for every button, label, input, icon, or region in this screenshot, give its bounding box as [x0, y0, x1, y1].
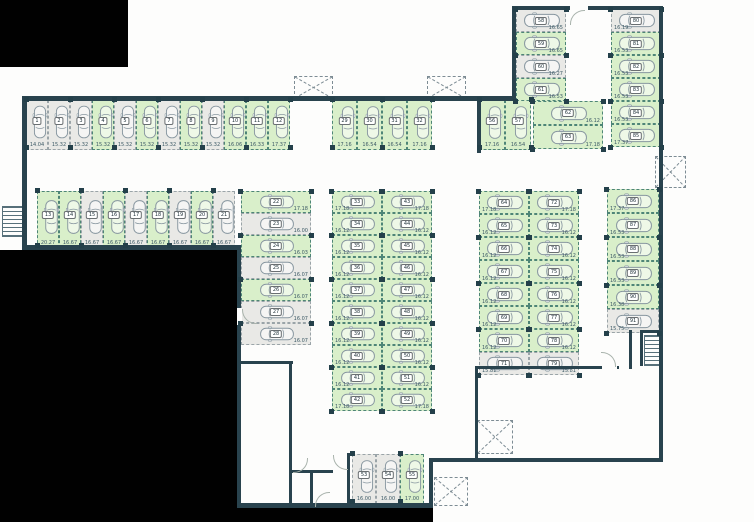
stall-number: 7: [164, 117, 173, 125]
structural-pillar: [244, 145, 249, 150]
structural-pillar: [564, 53, 569, 58]
wall: [22, 96, 516, 101]
stall-dimension: 17.37: [269, 143, 289, 148]
parking-stall-60[interactable]: 6016.27: [516, 55, 566, 78]
stall-dimension: 16.12: [335, 361, 349, 366]
structural-pillar: [526, 327, 531, 332]
structural-pillar: [329, 365, 334, 370]
door-arc: [333, 455, 348, 470]
parking-stall-78[interactable]: 7816.12: [529, 329, 579, 352]
structural-pillar: [601, 147, 606, 152]
parking-stall-89[interactable]: 8916.53: [607, 261, 659, 285]
structural-pillar: [476, 327, 481, 332]
stall-dimension: 16.27: [549, 72, 563, 77]
parking-stall-30[interactable]: 3016.54: [357, 100, 382, 150]
parking-stall-55[interactable]: 5517.00: [400, 454, 424, 504]
door-arc: [315, 492, 330, 507]
stall-number: 21: [218, 211, 230, 219]
stall-number: 52: [401, 396, 413, 404]
stall-number: 38: [351, 308, 363, 316]
parking-stall-61[interactable]: 6116.53: [516, 78, 566, 101]
stall-dimension: 16.12: [335, 251, 349, 256]
structural-pillar: [309, 277, 314, 282]
parking-stall-57[interactable]: 5716.54: [505, 100, 531, 150]
stall-dimension: 16.12: [335, 229, 349, 234]
stall-number: 78: [548, 337, 560, 345]
parking-stall-59[interactable]: 5916.65: [516, 32, 566, 55]
stall-number: 48: [401, 308, 413, 316]
parking-stall-20[interactable]: 2016.67: [191, 191, 213, 248]
parking-stall-62[interactable]: 6216.12: [533, 101, 603, 125]
stall-group-upper-col-left: 5816.65 5916.65 6016.27 6116.53: [516, 9, 566, 101]
stall-group-bottom-row: 5316.00 5416.00 5517.00: [352, 454, 424, 504]
stall-number: 91: [627, 317, 639, 325]
parking-stall-41[interactable]: 4116.12: [332, 367, 382, 389]
parking-stall-14[interactable]: 1416.67: [59, 191, 81, 248]
structural-pillar: [238, 277, 243, 282]
parking-stall-54[interactable]: 5416.00: [376, 454, 400, 504]
parking-stall-47[interactable]: 4716.12: [382, 279, 432, 301]
stall-dimension: 16.12: [335, 339, 349, 344]
structural-pillar: [430, 233, 435, 238]
stall-dimension: 16.53: [610, 279, 624, 284]
structural-pillar: [430, 189, 435, 194]
stall-dimension: 16.12: [482, 300, 496, 305]
stall-dimension: 16.12: [562, 231, 576, 236]
stall-dimension: 15.81: [482, 369, 496, 374]
stall-number: 13: [42, 211, 54, 219]
stall-dimension: 16.12: [335, 295, 349, 300]
stall-number: 42: [351, 396, 363, 404]
stall-number: 89: [627, 269, 639, 277]
structural-pillar: [68, 97, 73, 102]
stall-number: 83: [630, 86, 642, 94]
stall-dimension: 17.37: [614, 141, 628, 146]
parking-stall-49[interactable]: 4916.12: [382, 323, 432, 345]
structural-pillar: [577, 189, 582, 194]
parking-stall-22[interactable]: 2217.18: [241, 191, 311, 213]
parking-stall-58[interactable]: 5816.65: [516, 9, 566, 32]
stall-number: 5: [120, 117, 129, 125]
structural-pillar: [657, 187, 662, 192]
stall-dimension: 16.53: [610, 231, 624, 236]
parking-stall-39[interactable]: 3916.12: [332, 323, 382, 345]
parking-stall-17[interactable]: 1716.67: [125, 191, 147, 248]
parking-stall-13[interactable]: 1320.27: [37, 191, 59, 248]
stall-dimension: 17.18: [415, 405, 429, 410]
structural-pillar: [35, 243, 40, 248]
stall-number: 80: [630, 17, 642, 25]
structural-pillar: [288, 97, 293, 102]
stall-number: 47: [401, 286, 413, 294]
stall-dimension: 16.12: [415, 383, 429, 388]
stall-dimension: 15.81: [562, 369, 576, 374]
parking-stall-29[interactable]: 2917.16: [332, 100, 357, 150]
stall-dimension: 16.12: [415, 317, 429, 322]
stall-number: 9: [208, 117, 217, 125]
stall-number: 19: [174, 211, 186, 219]
parking-stall-31[interactable]: 3116.54: [382, 100, 407, 150]
stall-group-second-row: 1320.27 1416.67 1516.67 1616.67 1716.67 …: [37, 191, 235, 248]
structural-pillar: [659, 53, 664, 58]
structural-pillar: [608, 145, 613, 150]
structural-pillar: [380, 97, 385, 102]
parking-stall-80[interactable]: 8016.19: [611, 9, 661, 32]
stall-dimension: 16.12: [415, 295, 429, 300]
parking-stall-56[interactable]: 5617.16: [479, 100, 505, 150]
stall-number: 81: [630, 40, 642, 48]
structural-pillar: [657, 283, 662, 288]
stall-dimension: 16.12: [482, 231, 496, 236]
stall-number: 3: [76, 117, 85, 125]
structural-pillar: [329, 233, 334, 238]
stall-number: 57: [512, 117, 524, 125]
stall-number: 24: [270, 242, 282, 250]
structural-pillar: [238, 189, 243, 194]
structural-pillar: [329, 321, 334, 326]
stall-dimension: 16.07: [294, 317, 308, 322]
stall-number: 4: [98, 117, 107, 125]
stall-dimension: 16.53: [614, 118, 628, 123]
stall-number: 46: [401, 264, 413, 272]
stall-number: 74: [548, 245, 560, 253]
parking-stall-45[interactable]: 4516.12: [382, 235, 432, 257]
parking-stall-52[interactable]: 5217.18: [382, 389, 432, 411]
structural-pillar: [601, 99, 606, 104]
stall-dimension: 16.12: [415, 251, 429, 256]
parking-stall-90[interactable]: 9016.38: [607, 285, 659, 309]
structural-pillar: [329, 277, 334, 282]
structural-pillar: [608, 99, 613, 104]
parking-stall-3[interactable]: 315.32: [70, 100, 92, 150]
wall: [289, 361, 292, 506]
structural-pillar: [526, 235, 531, 240]
stall-number: 1: [32, 117, 41, 125]
stall-dimension: 16.03: [294, 251, 308, 256]
parking-stall-84[interactable]: 8416.53: [611, 101, 661, 124]
parking-stall-5[interactable]: 515.32: [114, 100, 136, 150]
parking-stall-34[interactable]: 3416.12: [332, 213, 382, 235]
structural-pillar: [526, 189, 531, 194]
parking-stall-16[interactable]: 1616.67: [103, 191, 125, 248]
stall-dimension: 17.37: [610, 207, 624, 212]
wall: [475, 366, 478, 462]
parking-stall-2[interactable]: 215.32: [48, 100, 70, 150]
parking-stall-87[interactable]: 8716.53: [607, 213, 659, 237]
parking-stall-40[interactable]: 4016.12: [332, 345, 382, 367]
parking-stall-38[interactable]: 3816.12: [332, 301, 382, 323]
stall-dimension: 16.12: [562, 254, 576, 259]
stall-dimension: 16.12: [335, 273, 349, 278]
parking-stall-7[interactable]: 715.32: [158, 100, 180, 150]
stall-number: 15: [86, 211, 98, 219]
stall-number: 50: [401, 352, 413, 360]
parking-stall-10[interactable]: 1016.06: [224, 100, 246, 150]
parking-stall-44[interactable]: 4416.12: [382, 213, 432, 235]
stall-number: 65: [498, 222, 510, 230]
structural-pillar: [379, 409, 384, 414]
stall-number: 29: [338, 117, 350, 125]
stall-dimension: 17.18: [294, 207, 308, 212]
structural-pillar: [238, 233, 243, 238]
structural-pillar: [380, 145, 385, 150]
structural-pillar: [200, 145, 205, 150]
structural-pillar: [659, 99, 664, 104]
structural-pillar: [604, 187, 609, 192]
structural-pillar: [244, 97, 249, 102]
stall-dimension: 14.04: [27, 143, 47, 148]
stall-group-mid-col-left: 3317.18 3416.12 3516.12 3616.12 3716.12 …: [332, 191, 382, 411]
parking-stall-53[interactable]: 5316.00: [352, 454, 376, 504]
stall-number: 61: [535, 86, 547, 94]
parking-stall-33[interactable]: 3317.18: [332, 191, 382, 213]
stall-number: 32: [413, 117, 425, 125]
parking-stall-11[interactable]: 1116.33: [246, 100, 268, 150]
wall: [477, 366, 619, 369]
stairs-icon: [2, 206, 24, 237]
structural-pillar: [238, 321, 243, 326]
stall-dimension: 16.12: [562, 277, 576, 282]
structural-pillar: [430, 321, 435, 326]
structural-pillar: [476, 373, 481, 378]
parking-stall-8[interactable]: 815.32: [180, 100, 202, 150]
parking-stall-1[interactable]: 114.04: [26, 100, 48, 150]
stall-dimension: 16.00: [377, 497, 399, 502]
stall-number: 35: [351, 242, 363, 250]
stall-dimension: 16.12: [586, 119, 600, 124]
parking-stall-72[interactable]: 7217.18: [529, 191, 579, 214]
structural-pillar: [35, 188, 40, 193]
stall-dimension: 16.65: [549, 49, 563, 54]
parking-stall-25[interactable]: 2516.07: [241, 257, 311, 279]
stall-number: 34: [351, 220, 363, 228]
stall-number: 30: [363, 117, 375, 125]
stall-dimension: 17.18: [586, 143, 600, 148]
stall-dimension: 16.12: [482, 254, 496, 259]
stall-number: 70: [498, 337, 510, 345]
parking-stall-50[interactable]: 5016.12: [382, 345, 432, 367]
structural-pillar: [398, 451, 403, 456]
parking-stall-77[interactable]: 7716.12: [529, 306, 579, 329]
elevator-shaft-icon: [477, 420, 513, 454]
stall-dimension: 16.38: [610, 303, 624, 308]
structural-pillar: [309, 321, 314, 326]
structural-pillar: [350, 451, 355, 456]
stall-dimension: 16.54: [383, 143, 406, 148]
parking-stall-43[interactable]: 4317.18: [382, 191, 432, 213]
stall-number: 11: [251, 117, 263, 125]
structural-pillar: [123, 188, 128, 193]
stall-number: 18: [152, 211, 164, 219]
parking-stall-23[interactable]: 2316.00: [241, 213, 311, 235]
stall-dimension: 17.16: [408, 143, 431, 148]
structural-pillar: [604, 283, 609, 288]
parking-stall-24[interactable]: 2416.03: [241, 235, 311, 257]
parking-stall-70[interactable]: 7016.12: [479, 329, 529, 352]
stall-number: 49: [401, 330, 413, 338]
wall: [237, 245, 241, 508]
parking-stall-35[interactable]: 3516.12: [332, 235, 382, 257]
parking-stall-67[interactable]: 6716.12: [479, 260, 529, 283]
stall-number: 45: [401, 242, 413, 250]
structural-pillar: [309, 189, 314, 194]
stall-number: 2: [54, 117, 63, 125]
structural-pillar: [476, 189, 481, 194]
parking-stall-26[interactable]: 2616.07: [241, 279, 311, 301]
stall-dimension: 16.07: [294, 273, 308, 278]
stall-number: 54: [382, 471, 394, 479]
stall-number: 41: [351, 374, 363, 382]
stall-number: 51: [401, 374, 413, 382]
parking-stall-73[interactable]: 7316.12: [529, 214, 579, 237]
stall-dimension: 16.12: [562, 323, 576, 328]
parking-stall-81[interactable]: 8116.53: [611, 32, 661, 55]
stall-number: 87: [627, 221, 639, 229]
stall-number: 36: [351, 264, 363, 272]
stall-number: 67: [498, 268, 510, 276]
stall-number: 40: [351, 352, 363, 360]
structural-pillar: [476, 235, 481, 240]
parking-stall-32[interactable]: 3217.16: [407, 100, 432, 150]
stall-number: 23: [270, 220, 282, 228]
parking-stall-71[interactable]: 7115.81: [479, 352, 529, 375]
stall-group-upper-pair-h: 6216.12 6317.18: [533, 101, 603, 149]
parking-stall-68[interactable]: 6816.12: [479, 283, 529, 306]
stall-dimension: 16.33: [247, 143, 267, 148]
structural-pillar: [24, 97, 29, 102]
stall-number: 26: [270, 286, 282, 294]
parking-stall-85[interactable]: 8517.37: [611, 124, 661, 147]
parking-stall-18[interactable]: 1816.67: [147, 191, 169, 248]
structural-pillar: [513, 53, 518, 58]
stall-number: 88: [627, 245, 639, 253]
stall-dimension: 15.75: [610, 327, 624, 332]
structural-pillar: [398, 499, 403, 504]
parking-stall-88[interactable]: 8816.53: [607, 237, 659, 261]
stall-dimension: 17.18: [482, 208, 496, 213]
parking-stall-46[interactable]: 4616.12: [382, 257, 432, 279]
wall: [429, 458, 433, 508]
stall-number: 44: [401, 220, 413, 228]
structural-pillar: [430, 145, 435, 150]
stall-dimension: 17.16: [333, 143, 356, 148]
stall-dimension: 16.12: [335, 383, 349, 388]
structural-pillar: [112, 145, 117, 150]
parking-stall-66[interactable]: 6616.12: [479, 237, 529, 260]
structural-pillar: [112, 97, 117, 102]
structural-pillar: [604, 235, 609, 240]
outside-area: [237, 508, 433, 522]
structural-pillar: [477, 97, 482, 102]
structural-pillar: [330, 145, 335, 150]
parking-stall-28[interactable]: 2816.07: [241, 323, 311, 345]
parking-stall-12[interactable]: 1217.37: [268, 100, 290, 150]
stall-number: 43: [401, 198, 413, 206]
stall-number: 16: [108, 211, 120, 219]
stall-dimension: 15.32: [137, 143, 157, 148]
door-arc: [570, 10, 585, 25]
structural-pillar: [659, 7, 664, 12]
stall-group-far-right-col: 8617.37 8716.53 8816.53 8916.53 9016.38 …: [607, 189, 659, 333]
parking-stall-19[interactable]: 1916.67: [169, 191, 191, 248]
parking-stall-42[interactable]: 4217.18: [332, 389, 382, 411]
stall-dimension: 15.32: [93, 143, 113, 148]
parking-stall-51[interactable]: 5116.12: [382, 367, 432, 389]
structural-pillar: [577, 327, 582, 332]
stall-group-right-col-right: 7217.18 7316.12 7416.12 7516.12 7616.12 …: [529, 191, 579, 375]
parking-stall-86[interactable]: 8617.37: [607, 189, 659, 213]
stall-dimension: 16.53: [549, 95, 563, 100]
parking-stall-65[interactable]: 6516.12: [479, 214, 529, 237]
parking-stall-63[interactable]: 6317.18: [533, 125, 603, 149]
outside-area: [0, 250, 237, 522]
structural-pillar: [329, 189, 334, 194]
stall-number: 85: [630, 132, 642, 140]
structural-pillar: [350, 499, 355, 504]
stall-dimension: 16.53: [614, 72, 628, 77]
structural-pillar: [330, 97, 335, 102]
parking-stall-75[interactable]: 7516.12: [529, 260, 579, 283]
stall-dimension: 16.53: [614, 49, 628, 54]
structural-pillar: [430, 365, 435, 370]
stall-number: 76: [548, 291, 560, 299]
structural-pillar: [657, 331, 662, 336]
stall-dimension: 16.19: [614, 26, 628, 31]
structural-pillar: [211, 188, 216, 193]
structural-pillar: [477, 145, 482, 150]
parking-stall-79[interactable]: 7915.81: [529, 352, 579, 375]
parking-stall-15[interactable]: 1516.67: [81, 191, 103, 248]
parking-stall-64[interactable]: 6417.18: [479, 191, 529, 214]
structural-pillar: [68, 145, 73, 150]
stall-dimension: 16.07: [294, 339, 308, 344]
parking-stall-48[interactable]: 4816.12: [382, 301, 432, 323]
structural-pillar: [79, 188, 84, 193]
stall-number: 28: [270, 330, 282, 338]
structural-pillar: [657, 235, 662, 240]
parking-stall-69[interactable]: 6916.12: [479, 306, 529, 329]
structural-pillar: [430, 409, 435, 414]
parking-stall-6[interactable]: 615.32: [136, 100, 158, 150]
parking-stall-83[interactable]: 8316.53: [611, 78, 661, 101]
stall-group-mid-top-row: 2917.16 3016.54 3116.54 3217.16: [332, 100, 432, 150]
parking-stall-74[interactable]: 7416.12: [529, 237, 579, 260]
stall-dimension: 16.12: [415, 229, 429, 234]
stall-dimension: 16.12: [415, 361, 429, 366]
structural-pillar: [211, 243, 216, 248]
structural-pillar: [513, 99, 518, 104]
parking-stall-21[interactable]: 2116.67: [213, 191, 235, 248]
stall-dimension: 16.12: [482, 323, 496, 328]
stall-number: 60: [535, 63, 547, 71]
stall-number: 63: [562, 133, 574, 141]
parking-stall-76[interactable]: 7616.12: [529, 283, 579, 306]
parking-stall-82[interactable]: 8216.53: [611, 55, 661, 78]
stall-dimension: 17.00: [401, 497, 423, 502]
structural-pillar: [659, 145, 664, 150]
stall-dimension: 17.16: [480, 143, 504, 148]
stall-dimension: 16.12: [482, 277, 496, 282]
parking-stall-36[interactable]: 3616.12: [332, 257, 382, 279]
stall-dimension: 15.32: [181, 143, 201, 148]
structural-pillar: [24, 145, 29, 150]
parking-stall-4[interactable]: 415.32: [92, 100, 114, 150]
parking-stall-9[interactable]: 915.32: [202, 100, 224, 150]
stall-number: 39: [351, 330, 363, 338]
door-arc: [601, 352, 616, 367]
parking-stall-37[interactable]: 3716.12: [332, 279, 382, 301]
wall: [237, 361, 293, 364]
